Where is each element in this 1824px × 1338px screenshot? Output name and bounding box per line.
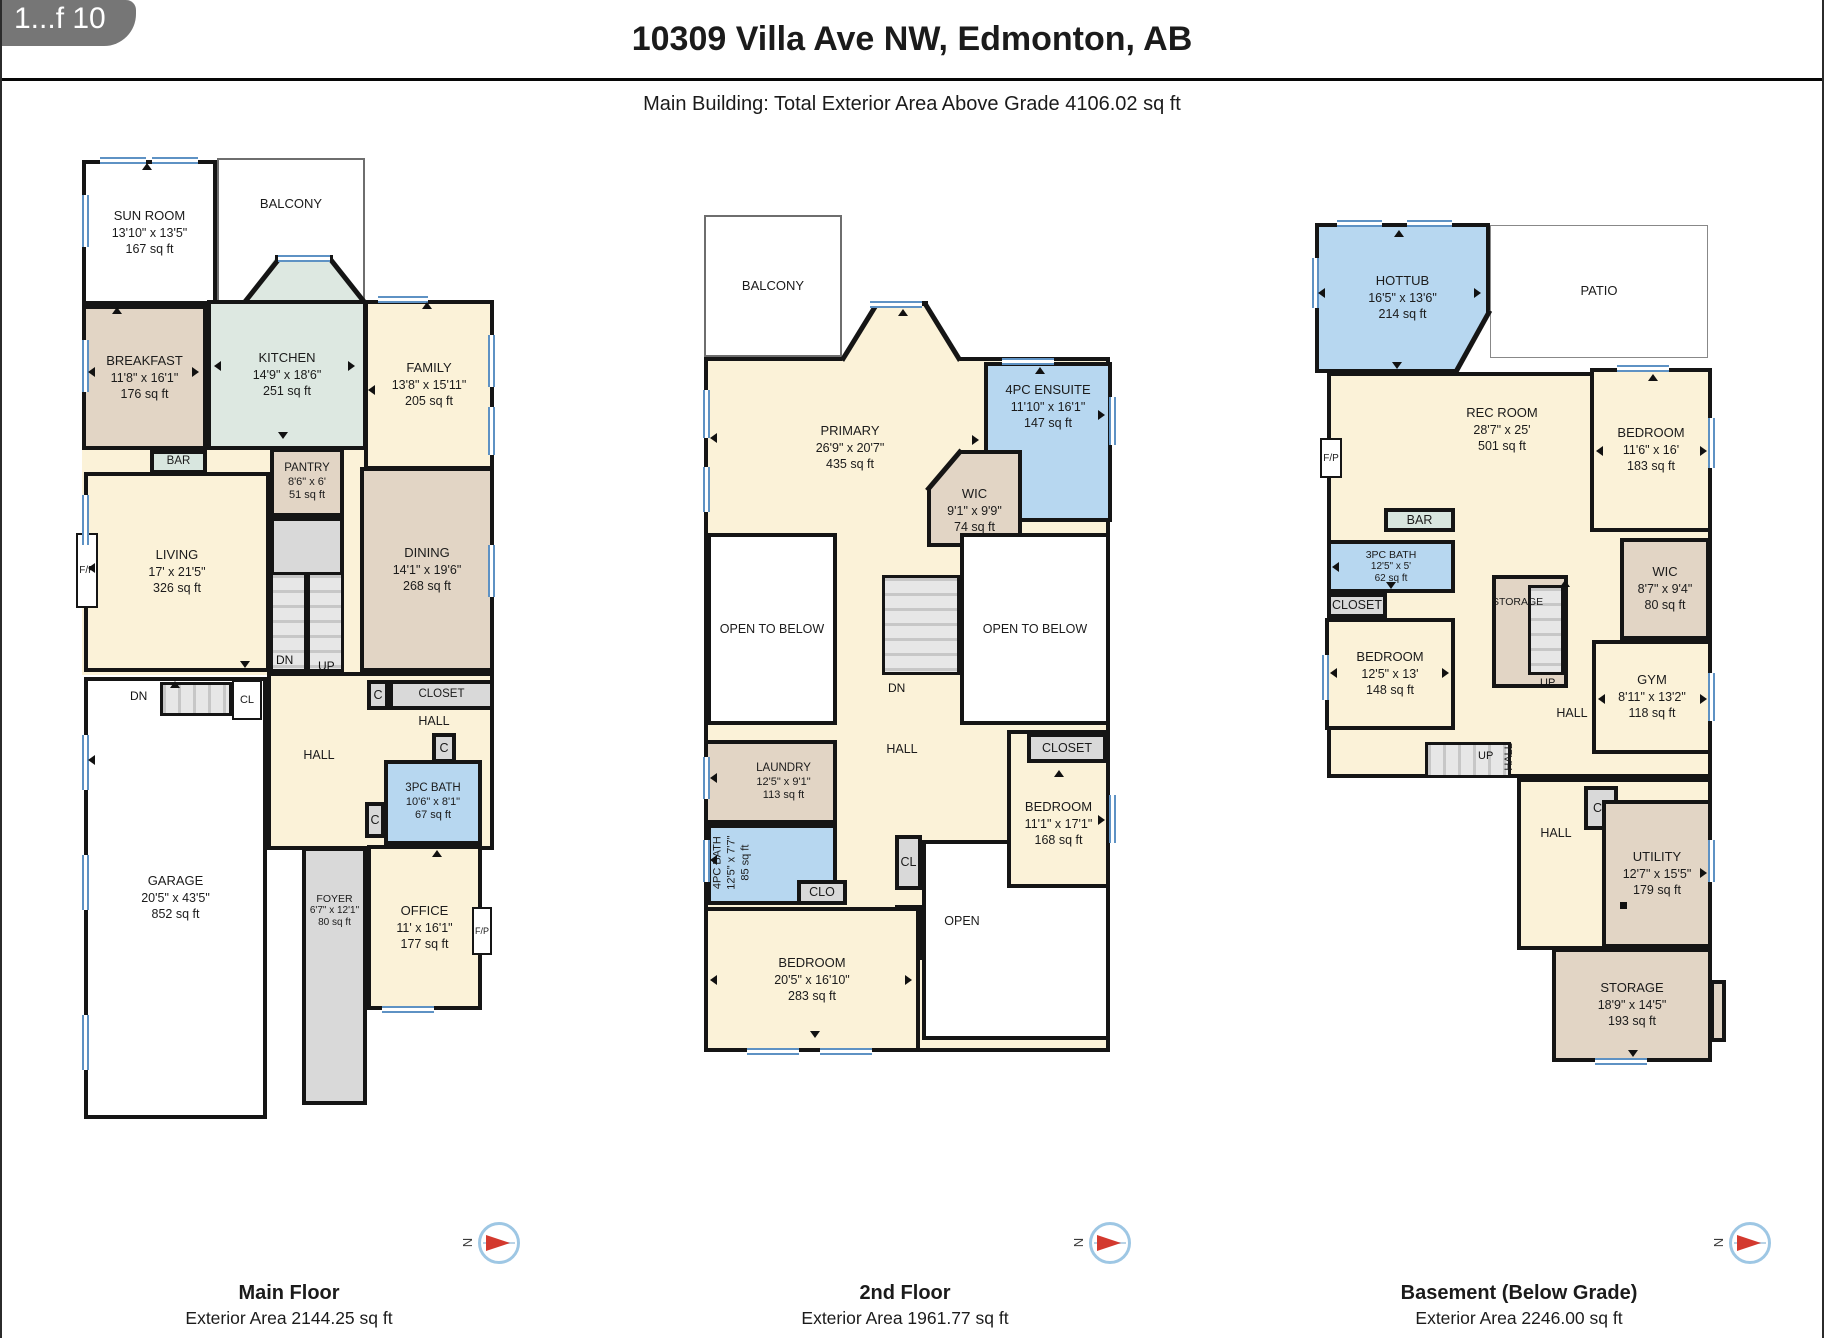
direction-arrow	[142, 163, 152, 170]
room-label: UTILITY 12'7" x 15'5" 179 sq ft	[1623, 849, 1692, 898]
floor-plan-second: BALCONY PRIMARY 26'9" x 20'7" 435 sq ft …	[702, 185, 1120, 1075]
room-label: BEDROOM 11'6" x 16' 183 sq ft	[1617, 425, 1684, 474]
window-mark	[488, 407, 495, 455]
room-label: 3PC BATH 10'6" x 8'1" 67 sq ft	[405, 782, 460, 822]
compass-rose: N	[1089, 1222, 1131, 1264]
window-mark	[703, 840, 710, 882]
room-label: HOTTUB 16'5" x 13'6" 214 sq ft	[1368, 273, 1437, 322]
closet-cl: CL	[232, 680, 262, 720]
direction-arrow	[368, 385, 375, 395]
window-mark	[152, 157, 198, 164]
room-label: BAR	[167, 455, 191, 469]
floor-caption-second: 2nd Floor Exterior Area 1961.77 sq ft	[755, 1282, 1055, 1329]
room-4pc-bath-label: 4PC BATH 12'5" x 7'7" 85 sq ft	[711, 813, 752, 913]
window-mark	[1407, 220, 1452, 227]
room-label: PATIO	[1580, 283, 1617, 300]
room-label: BEDROOM 12'5" x 13' 148 sq ft	[1356, 649, 1423, 698]
closet-clo: CLO	[797, 880, 847, 905]
compass-north-label: N	[460, 1238, 475, 1247]
caption-area: Exterior Area 2246.00 sq ft	[1369, 1308, 1669, 1329]
window-mark	[1708, 840, 1715, 882]
room-label: FAMILY 13'8" x 15'11" 205 sq ft	[392, 360, 467, 409]
window-mark	[488, 545, 495, 597]
hall-vertical-label: HALL	[1503, 737, 1517, 777]
room-label: BREAKFAST 11'8" x 16'1" 176 sq ft	[106, 353, 183, 402]
direction-arrow	[1700, 446, 1707, 456]
direction-arrow	[170, 681, 180, 688]
direction-arrow	[432, 850, 442, 857]
room-label: OFFICE 11' x 16'1" 177 sq ft	[396, 903, 452, 952]
window-mark	[382, 1006, 434, 1013]
staircase-up	[307, 572, 344, 672]
room-dining: DINING 14'1" x 19'6" 268 sq ft	[360, 467, 494, 672]
compass-north-label: N	[1071, 1238, 1086, 1247]
room-label: LAUNDRY 12'5" x 9'1" 113 sq ft	[730, 762, 811, 802]
window-mark	[488, 335, 495, 387]
room-label: BEDROOM 20'5" x 16'10" 283 sq ft	[774, 955, 850, 1004]
window-mark	[1109, 795, 1116, 843]
staircase-hall-up	[1425, 742, 1511, 778]
room-patio: PATIO	[1490, 225, 1708, 358]
direction-arrow	[1330, 668, 1337, 678]
utility-dot	[1620, 902, 1627, 909]
room-gym: GYM 8'11" x 13'2" 118 sq ft	[1592, 640, 1712, 754]
direction-arrow	[810, 1031, 820, 1038]
direction-arrow	[710, 975, 717, 985]
floor-plan-page: 1...f 10 10309 Villa Ave NW, Edmonton, A…	[0, 0, 1824, 1338]
compass-north-label: N	[1711, 1238, 1726, 1247]
direction-arrow	[1098, 815, 1105, 825]
room-label: LIVING 17' x 21'5" 326 sq ft	[148, 547, 205, 596]
window-mark	[747, 1048, 799, 1055]
caption-title: 2nd Floor	[755, 1282, 1055, 1305]
direction-arrow	[1386, 582, 1396, 589]
fireplace-office: F/P	[472, 907, 492, 955]
storage-upper-label: STORAGE	[1492, 596, 1540, 610]
room-sun-room: SUN ROOM 13'10" x 13'5" 167 sq ft	[82, 160, 217, 305]
room-label: BEDROOM 11'1" x 17'1" 168 sq ft	[1025, 769, 1093, 848]
stairs-dn-label: DN	[130, 689, 147, 703]
direction-arrow	[710, 855, 717, 865]
room-wic-3: WIC 8'7" x 9'4" 80 sq ft	[1620, 538, 1710, 640]
direction-arrow	[214, 361, 221, 371]
direction-arrow	[192, 367, 199, 377]
direction-arrow	[1035, 367, 1045, 374]
hall-upper-label: HALL	[1550, 705, 1594, 721]
room-bedroom-right-3: BEDROOM 11'6" x 16' 183 sq ft	[1590, 368, 1712, 532]
window-mark	[1708, 418, 1715, 468]
room-closet-2: CLOSET	[1027, 733, 1107, 763]
stairs-dn-label: DN	[888, 681, 905, 695]
direction-arrow	[1332, 562, 1339, 572]
window-mark	[82, 1015, 89, 1070]
direction-arrow	[88, 563, 95, 573]
closet-cl: CL	[895, 835, 922, 890]
open-label: OPEN	[934, 913, 990, 929]
room-storage: STORAGE 18'9" x 14'5" 193 sq ft	[1552, 948, 1712, 1062]
direction-arrow	[422, 302, 432, 309]
room-closet: CLOSET	[389, 680, 494, 710]
room-label: PANTRY 8'6" x 6' 51 sq ft	[284, 462, 330, 502]
room-label: SUN ROOM 13'10" x 13'5" 167 sq ft	[112, 208, 188, 257]
direction-arrow	[1394, 230, 1404, 237]
staircase-down-2	[882, 575, 960, 675]
hall-label: HALL	[297, 747, 341, 763]
page-subtitle: Main Building: Total Exterior Area Above…	[2, 93, 1822, 116]
title-divider	[2, 78, 1822, 81]
page-title: 10309 Villa Ave NW, Edmonton, AB	[2, 20, 1822, 59]
storage-bump	[1710, 980, 1726, 1042]
room-kitchen: KITCHEN 14'9" x 18'6" 251 sq ft	[207, 300, 367, 450]
room-foyer: FOYER 6'7" x 12'1" 80 sq ft	[302, 847, 367, 1105]
floor-plan-main: SUN ROOM 13'10" x 13'5" 167 sq ft BALCON…	[82, 155, 497, 1140]
room-label: STORAGE 18'9" x 14'5" 193 sq ft	[1598, 980, 1667, 1029]
direction-arrow	[1596, 446, 1603, 456]
window-mark	[1109, 397, 1116, 445]
compass-rose: N	[478, 1222, 520, 1264]
window-mark	[1708, 673, 1715, 721]
room-label: FOYER 6'7" x 12'1" 80 sq ft	[310, 851, 359, 928]
stairs-landing	[270, 517, 344, 577]
caption-area: Exterior Area 1961.77 sq ft	[755, 1308, 1055, 1329]
room-garage: GARAGE 20'5" x 43'5" 852 sq ft	[84, 677, 267, 1119]
window-mark	[703, 467, 710, 512]
room-primary-label: PRIMARY 26'9" x 20'7" 435 sq ft	[765, 423, 935, 472]
direction-arrow	[1628, 1050, 1638, 1057]
window-mark	[82, 195, 89, 247]
window-mark	[378, 296, 428, 303]
direction-arrow	[1054, 770, 1064, 777]
stairs-dn-label: DN	[276, 653, 293, 667]
direction-arrow	[1700, 694, 1707, 704]
window-mark	[82, 340, 89, 392]
room-family: FAMILY 13'8" x 15'11" 205 sq ft	[364, 300, 494, 470]
stairs-up-label: UP	[1540, 677, 1555, 689]
room-bedroom-3: BEDROOM 12'5" x 13' 148 sq ft	[1325, 618, 1455, 730]
window-mark	[82, 495, 89, 545]
room-label: CLOSET	[418, 688, 464, 702]
window-mark	[1322, 655, 1329, 700]
window-mark	[820, 1048, 872, 1055]
window-mark	[278, 255, 330, 262]
direction-arrow	[972, 435, 979, 445]
room-living: LIVING 17' x 21'5" 326 sq ft	[84, 472, 270, 672]
window-mark	[703, 757, 710, 799]
room-office: OFFICE 11' x 16'1" 177 sq ft	[367, 845, 482, 1010]
room-3pc-bath: 3PC BATH 10'6" x 8'1" 67 sq ft	[384, 760, 482, 845]
hall-lower-label: HALL	[1534, 825, 1578, 841]
room-label: DINING 14'1" x 19'6" 268 sq ft	[393, 545, 462, 594]
direction-arrow	[1700, 868, 1707, 878]
window-mark	[870, 301, 922, 308]
direction-arrow	[240, 661, 250, 668]
direction-arrow	[278, 432, 288, 439]
direction-arrow	[1560, 580, 1570, 587]
stairs-up-label: UP	[1478, 750, 1493, 762]
window-mark	[1312, 258, 1319, 308]
window-mark	[1337, 220, 1382, 227]
window-mark	[1617, 365, 1669, 372]
direction-arrow	[1318, 288, 1325, 298]
hall-label: HALL	[880, 741, 924, 757]
room-label: GYM 8'11" x 13'2" 118 sq ft	[1618, 672, 1686, 721]
direction-arrow	[1392, 362, 1402, 369]
direction-arrow	[88, 367, 95, 377]
direction-arrow	[88, 755, 95, 765]
closet-c: C	[367, 680, 389, 710]
caption-title: Basement (Below Grade)	[1369, 1282, 1669, 1305]
room-label: KITCHEN 14'9" x 18'6" 251 sq ft	[253, 350, 322, 399]
room-closet-3: CLOSET	[1327, 593, 1387, 618]
closet-c: C	[365, 802, 385, 838]
window-mark	[100, 157, 146, 164]
floor-plan-basement: PATIO HOTTUB 16'5" x 13'6" 214 sq ft REC…	[1312, 190, 1760, 1085]
room-label: 3PC BATH 12'5" x 5' 62 sq ft	[1366, 549, 1417, 584]
direction-arrow	[1598, 694, 1605, 704]
direction-arrow	[1098, 410, 1105, 420]
compass-arrow-icon	[486, 1235, 510, 1251]
caption-title: Main Floor	[139, 1282, 439, 1305]
floor-caption-main: Main Floor Exterior Area 2144.25 sq ft	[139, 1282, 439, 1329]
room-bar: BAR	[150, 450, 207, 474]
window-mark	[1002, 358, 1054, 365]
room-label: BALCONY	[260, 160, 322, 213]
room-label: BALCONY	[742, 278, 804, 295]
direction-arrow	[710, 773, 717, 783]
room-label: OPEN TO BELOW	[720, 621, 824, 637]
direction-arrow	[1442, 668, 1449, 678]
room-balcony-2: BALCONY	[704, 215, 842, 357]
room-label: WIC 8'7" x 9'4" 80 sq ft	[1638, 564, 1693, 613]
open-to-below-right: OPEN TO BELOW	[960, 533, 1110, 725]
room-utility: UTILITY 12'7" x 15'5" 179 sq ft	[1602, 800, 1712, 948]
compass-arrow-icon	[1737, 1235, 1761, 1251]
room-laundry: LAUNDRY 12'5" x 9'1" 113 sq ft	[704, 740, 837, 824]
caption-area: Exterior Area 2144.25 sq ft	[139, 1308, 439, 1329]
room-label: OPEN TO BELOW	[983, 621, 1087, 637]
window-mark	[82, 855, 89, 910]
room-label: 4PC ENSUITE 11'10" x 16'1" 147 sq ft	[1005, 366, 1090, 431]
window-mark	[1595, 1058, 1647, 1065]
room-bar-3: BAR	[1384, 508, 1455, 532]
compass-arrow-icon	[1097, 1235, 1121, 1251]
compass-rose: N	[1729, 1222, 1771, 1264]
stairs-up-label: UP	[318, 659, 335, 673]
room-breakfast: BREAKFAST 11'8" x 16'1" 176 sq ft	[82, 305, 207, 450]
direction-arrow	[905, 975, 912, 985]
hall-right-label: HALL	[412, 713, 456, 729]
room-pantry: PANTRY 8'6" x 6' 51 sq ft	[270, 448, 344, 517]
open-to-below-left: OPEN TO BELOW	[707, 533, 837, 725]
direction-arrow	[1474, 288, 1481, 298]
direction-arrow	[710, 433, 717, 443]
direction-arrow	[1648, 374, 1658, 381]
direction-arrow	[112, 307, 122, 314]
room-label: GARAGE 20'5" x 43'5" 852 sq ft	[141, 873, 210, 922]
fireplace-basement: F/P	[1320, 438, 1342, 478]
room-rec-label: REC ROOM 28'7" x 25' 501 sq ft	[1407, 405, 1597, 454]
closet-c: C	[432, 733, 456, 763]
direction-arrow	[348, 361, 355, 371]
direction-arrow	[898, 309, 908, 316]
window-mark	[703, 390, 710, 438]
floor-caption-basement: Basement (Below Grade) Exterior Area 224…	[1369, 1282, 1669, 1329]
